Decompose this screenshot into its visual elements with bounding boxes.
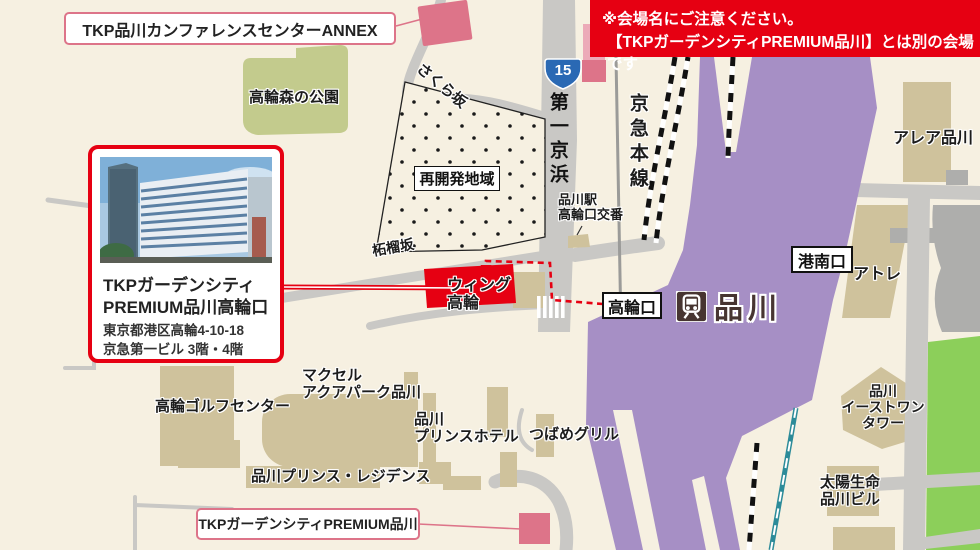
- route-number: 15: [544, 62, 582, 79]
- prince-hotel-label-line1: 品川: [414, 411, 519, 428]
- koban-label: 品川駅 高輪口交番: [558, 193, 623, 223]
- daiichi-keihin-label: 第一京浜: [546, 92, 568, 188]
- konan-exit-label: 港南口: [798, 248, 846, 272]
- access-map: ※会場名にご注意ください。 【TKPガーデンシティPREMIUM品川】とは別の会…: [0, 0, 980, 550]
- notice-line1: ※会場名にご注意ください。: [602, 7, 803, 29]
- east-one-label-line2: イーストワン: [833, 399, 933, 415]
- park-label: 高輪森の公園: [249, 89, 339, 106]
- venue-address-line1: 東京都港区高輪4-10-18: [103, 319, 244, 339]
- koban-label-line2: 高輪口交番: [558, 208, 623, 223]
- alea-label: アレア品川: [893, 130, 973, 148]
- station-label: 品川: [676, 285, 782, 327]
- east-one-label-line1: 品川: [833, 383, 933, 399]
- keikyu-line-label: 京急本線: [626, 93, 648, 193]
- notice-banner: ※会場名にご注意ください。 【TKPガーデンシティPREMIUM品川】とは別の会…: [590, 0, 980, 57]
- east-one-tower-label: 品川 イーストワン タワー: [833, 383, 933, 431]
- aqua-park-label-line2: アクアパーク品川: [302, 384, 421, 401]
- koban-building: [568, 234, 590, 248]
- aqua-park-label-line1: マクセル: [302, 367, 421, 384]
- redevelopment-label-box: 再開発地域: [414, 166, 500, 191]
- golf-center-label: 高輪ゴルフセンター: [155, 398, 290, 415]
- premium-shinagawa-building: [519, 513, 550, 544]
- taiyo-label-line2: 品川ビル: [819, 491, 881, 508]
- wing-takanawa-label: ウィング 高輪: [447, 277, 511, 314]
- callout-premium-label: TKPガーデンシティPREMIUM品川: [198, 514, 417, 534]
- green-area: [926, 336, 980, 550]
- wing-label-line1: ウィング: [447, 277, 511, 295]
- atre-label: アトレ: [853, 266, 901, 284]
- venue-card: TKPガーデンシティ PREMIUM品川高輪口 東京都港区高輪4-10-18 京…: [88, 145, 284, 363]
- konan-exit-box: 港南口: [791, 246, 853, 273]
- aqua-park-label: マクセル アクアパーク品川: [302, 367, 421, 402]
- taiyo-label-line1: 太陽生命: [819, 474, 881, 491]
- takanawa-exit-label: 高輪口: [608, 294, 656, 318]
- callout-annex: TKP品川カンファレンスセンターANNEX: [64, 12, 396, 45]
- venue-photo: [100, 157, 272, 263]
- prince-residence-label: 品川プリンス・レジデンス: [251, 468, 430, 485]
- tsubame-grill-label: つばめグリル: [529, 426, 619, 443]
- prince-hotel-label: 品川 プリンスホテル: [414, 411, 519, 446]
- annex-building: [417, 0, 472, 46]
- prince-hotel-label-line2: プリンスホテル: [414, 428, 519, 445]
- redevelopment-label: 再開発地域: [419, 168, 494, 189]
- route-15-shield-icon: 15: [544, 58, 582, 91]
- east-one-label-line3: タワー: [833, 415, 933, 431]
- callout-premium-shinagawa: TKPガーデンシティPREMIUM品川: [196, 508, 420, 540]
- train-station-icon: [676, 291, 707, 322]
- venue-address-line2: 京急第一ビル 3階・4階: [103, 338, 243, 358]
- station-name: 品川: [714, 285, 782, 327]
- taiyo-building-label: 太陽生命 品川ビル: [819, 474, 881, 509]
- venue-title-line2: PREMIUM品川高輪口: [103, 293, 268, 318]
- notice-line2: 【TKPガーデンシティPREMIUM品川】とは別の会場です: [607, 30, 980, 74]
- koban-label-line1: 品川駅: [558, 193, 623, 208]
- koban-leader: [577, 226, 582, 235]
- takanawa-exit-box: 高輪口: [602, 292, 662, 319]
- wing-label-line2: 高輪: [447, 295, 511, 313]
- callout-annex-label: TKP品川カンファレンスセンターANNEX: [82, 17, 377, 41]
